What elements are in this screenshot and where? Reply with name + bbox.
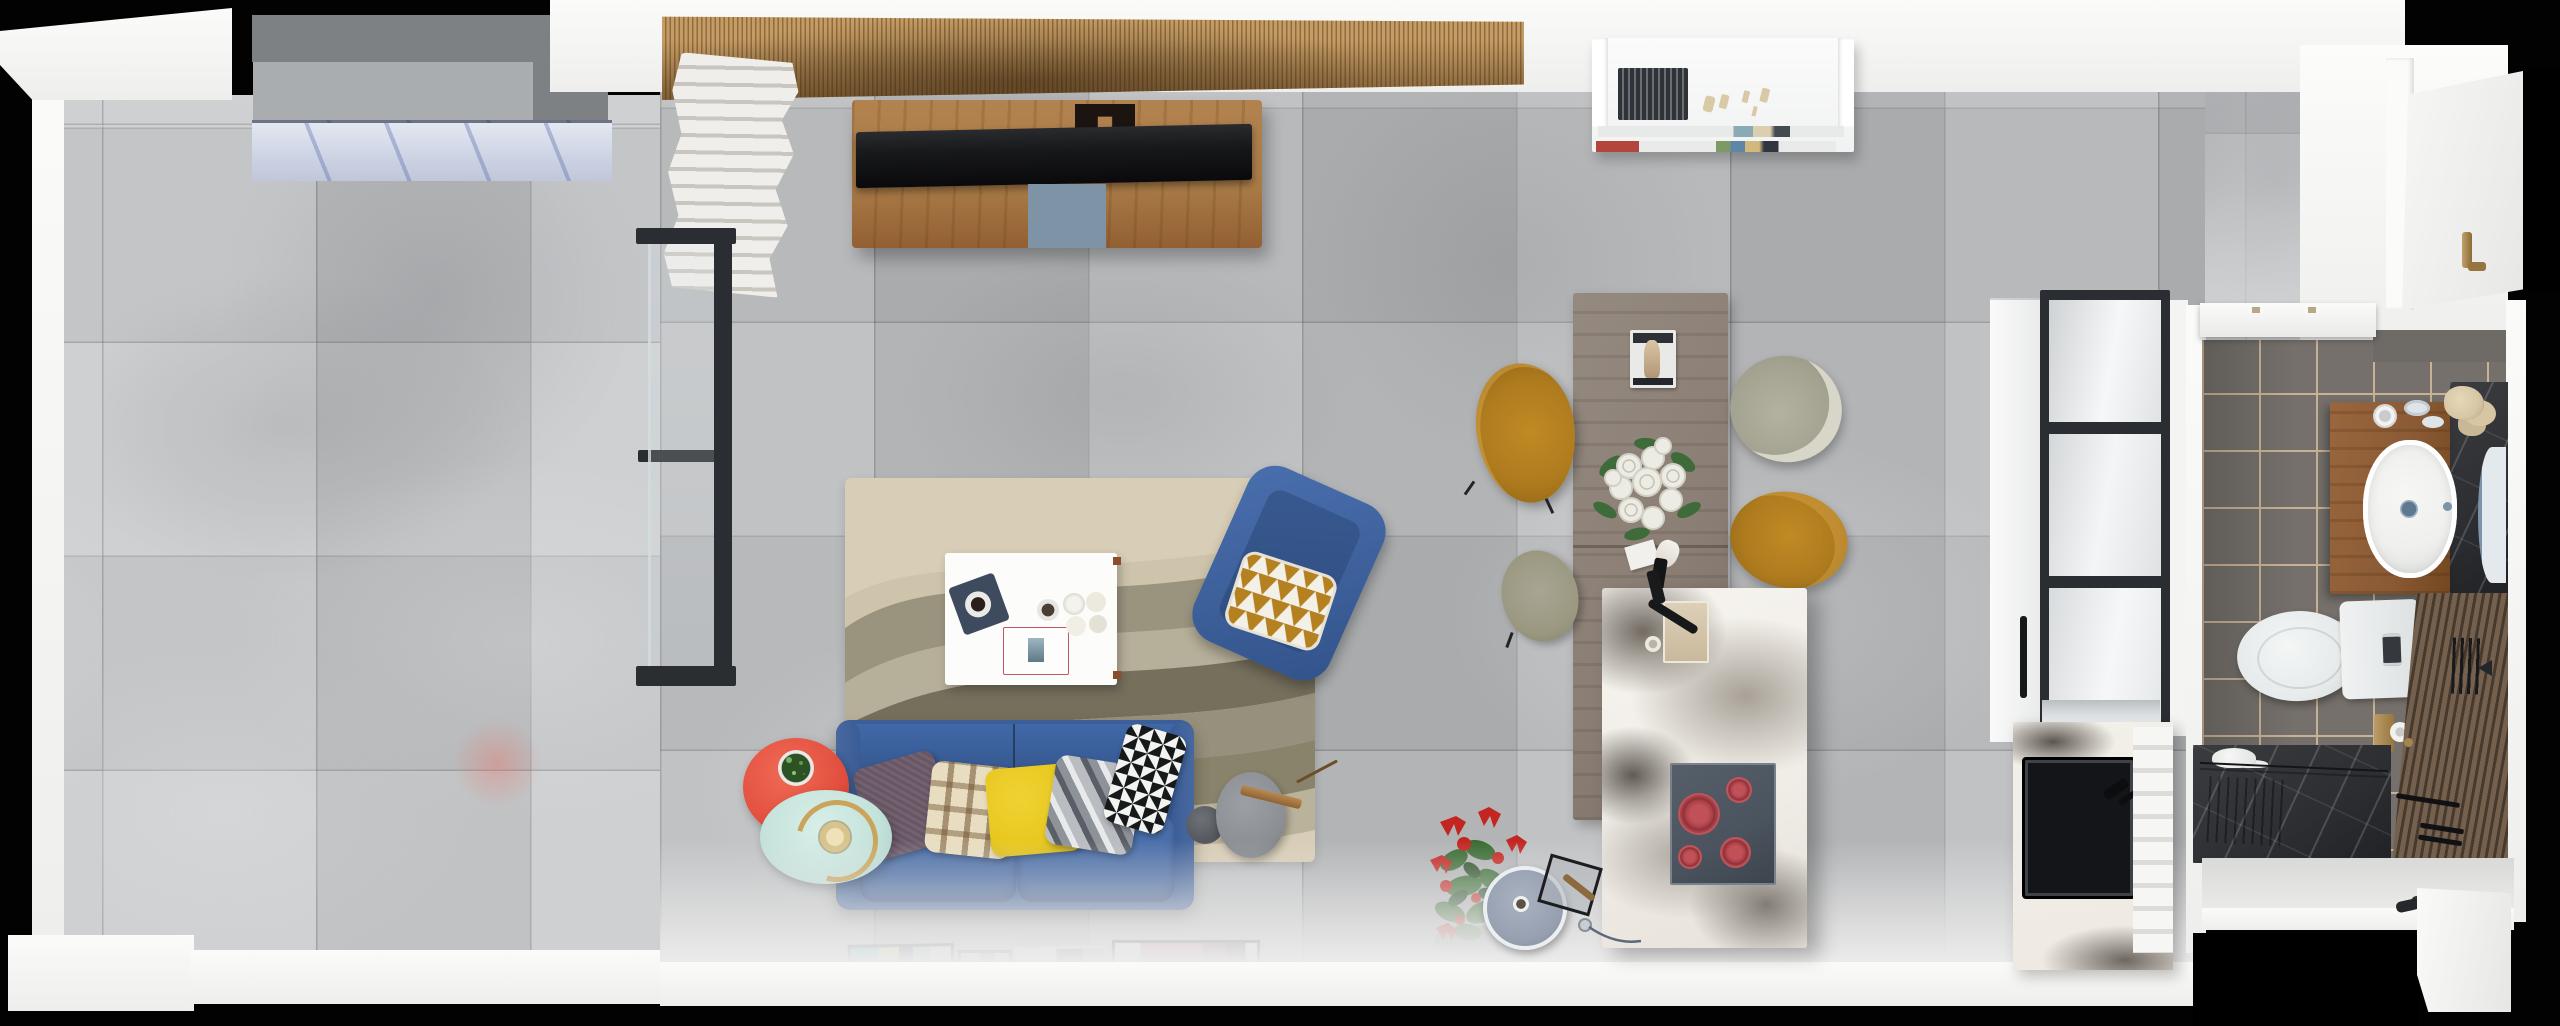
bathroom-wall-right xyxy=(2506,300,2526,922)
entry-opening-black xyxy=(2193,933,2419,1026)
shelf-row-bottom xyxy=(1596,141,1836,152)
cabinet-glass-unit xyxy=(2040,290,2170,742)
burner-small xyxy=(1678,845,1702,869)
shower-riser-bars xyxy=(2451,637,2483,694)
vanity-cup xyxy=(2375,406,2395,426)
balcony-wall-bottom-block xyxy=(8,935,194,1011)
burner-large xyxy=(1678,793,1720,835)
espresso-cup xyxy=(1037,599,1059,621)
island-dish xyxy=(1645,636,1661,652)
table-book xyxy=(1003,627,1069,675)
burner-medium xyxy=(1720,837,1751,868)
shower-drain-grid xyxy=(2206,776,2283,846)
magazine-cover-figure xyxy=(1644,340,1660,378)
balcony-glass-canopy xyxy=(252,120,612,181)
void-top-right xyxy=(2523,68,2560,292)
rose xyxy=(1063,593,1085,615)
sliding-door-glass xyxy=(648,244,714,666)
shelf-post-left xyxy=(1592,38,1608,128)
bathroom-north-wall-shadow xyxy=(2373,330,2511,362)
toilet-flush-button xyxy=(2382,633,2401,666)
shower-valve-gold xyxy=(2404,738,2413,747)
plant-dots xyxy=(786,757,792,763)
apartment-floorplan xyxy=(0,0,2560,1026)
tv-screen xyxy=(856,124,1252,188)
shelf-row-middle xyxy=(1598,126,1844,137)
balcony-planter-light xyxy=(253,62,533,120)
sofa xyxy=(836,720,1194,910)
cabinet-glass-door xyxy=(2049,300,2161,422)
sliding-door-glass-edge xyxy=(648,244,651,666)
floor-lamp-disc xyxy=(1216,772,1286,858)
table-lamp-shade xyxy=(820,822,850,852)
cabinet-hinge xyxy=(2252,307,2260,313)
tv-mat xyxy=(1028,184,1106,248)
cabinet-mirror-strip xyxy=(2042,700,2160,722)
glass-reflection xyxy=(452,718,542,808)
coffee-table xyxy=(945,553,1117,685)
textured-tile-strip xyxy=(2133,727,2173,953)
rose-bouquet xyxy=(1593,432,1701,544)
balcony-wall-bottom xyxy=(190,950,664,1004)
potted-plant-small xyxy=(778,750,814,786)
table-book-image xyxy=(1028,638,1044,662)
cabinet-side-panel xyxy=(1990,298,2042,742)
coffee-cup xyxy=(961,588,994,621)
black-sink xyxy=(2022,757,2136,899)
cabinet-glass-door xyxy=(2049,434,2161,576)
bathroom-wall-cabinet xyxy=(2200,303,2376,337)
cabinet-door-handle xyxy=(2020,616,2027,698)
vanity-mirror xyxy=(2478,447,2506,583)
towel-beige xyxy=(2444,386,2484,420)
vanity-tray xyxy=(2404,400,2430,416)
burner-small xyxy=(1726,777,1752,803)
white-roses-small xyxy=(1061,589,1111,641)
balcony-floor xyxy=(62,95,662,955)
shelf-figurine xyxy=(1702,95,1716,113)
entry-reveal-white xyxy=(2417,888,2511,1012)
cooktop xyxy=(1670,763,1776,885)
magazine-dining xyxy=(1630,330,1676,388)
stool-wire xyxy=(1575,915,1645,950)
sliding-door-bottom-rail xyxy=(636,666,736,686)
coffee-table-leg xyxy=(1113,671,1121,679)
basin-tap-dot xyxy=(2443,502,2452,511)
sliding-door xyxy=(636,228,740,690)
coffee-table-leg xyxy=(1113,557,1121,565)
living-wall-bottom xyxy=(660,962,2208,1006)
balcony-wall-left xyxy=(32,60,64,955)
serving-tray xyxy=(948,572,1010,635)
shelf-books-top xyxy=(1618,68,1688,120)
tall-cabinet xyxy=(1990,290,2188,742)
basin-drain xyxy=(2400,500,2418,518)
toilet xyxy=(2235,599,2422,707)
magazine-cover-bottom xyxy=(1633,378,1673,385)
media-shelf xyxy=(1592,38,1854,152)
balcony-wall-topleft xyxy=(0,8,232,100)
entry-door-handle-base xyxy=(2468,262,2486,271)
shelf-post-right xyxy=(1838,38,1854,128)
stool-hub xyxy=(1513,896,1529,912)
